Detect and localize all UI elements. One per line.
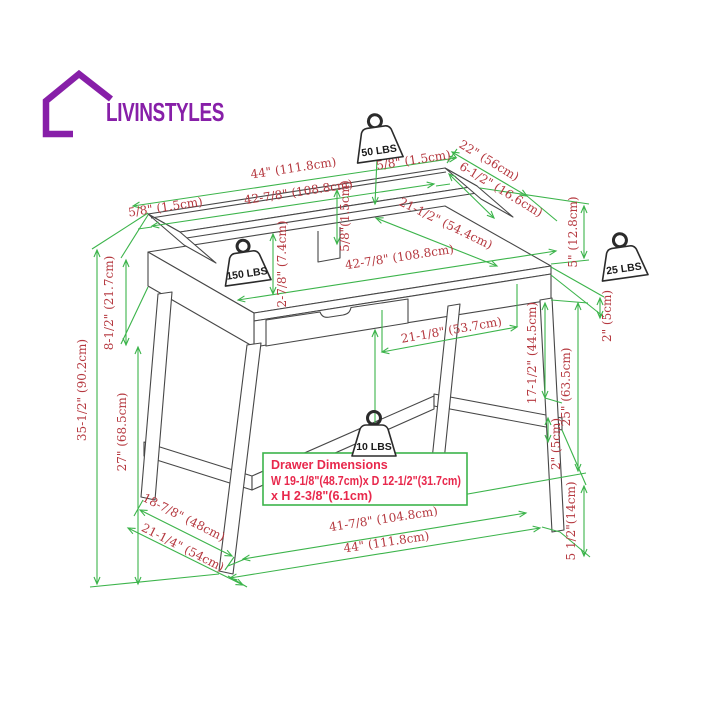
drawer-dimensions-callout: Drawer Dimensions W 19-1/8"(48.7cm)x D 1… — [263, 453, 467, 505]
front-left-leg — [219, 343, 261, 574]
dim-label-stretcher-drop: 17-1/2" (44.5cm) — [525, 302, 539, 404]
dim-label-leg-height: 27" (68.5cm) — [115, 393, 129, 472]
weight-ring-icon — [613, 233, 628, 248]
desk-drawing — [141, 168, 564, 574]
dim-label-riser-height: 5" (12.8cm) — [566, 196, 580, 267]
dim-label-underside-to-floor: 25" (63.5cm) — [559, 348, 573, 427]
brand-logo: LIVINSTYLES — [46, 74, 224, 134]
dim-label-top-edge: 2" (5cm) — [600, 290, 614, 342]
callout-line-2: W 19-1/8"(48.7cm)x D 12-1/2"(31.7cm) — [271, 474, 461, 488]
dim-label-shelf-clearance: 2-7/8" (7.4cm) — [275, 221, 289, 308]
dim-label-stretcher-to-floor: 5 1/2"(14cm) — [564, 481, 578, 560]
dim-label-shelf-thickness: 5/8"(1.5cm) — [338, 180, 352, 251]
dim-label-overall-height: 35-1/2" (90.2cm) — [75, 339, 89, 441]
ext-line-overall-top — [92, 213, 148, 249]
ext-line-carcass-bottom — [121, 287, 148, 344]
back-left-leg — [141, 292, 172, 500]
weight-badge-top-shelf: 50 LBS — [351, 112, 403, 163]
callout-line-3: x H 2-3/8"(6.1cm) — [271, 489, 372, 503]
brand-name: LIVINSTYLES — [106, 97, 224, 127]
house-icon — [46, 74, 111, 134]
dim-label-carcass-height: 8-1/2" (21.7cm) — [102, 256, 116, 351]
right-stretcher — [434, 394, 562, 430]
dim-label-bottom-width-outer: 44" (111.8cm) — [343, 529, 431, 556]
weight-badge-side: 25 LBS — [596, 231, 648, 281]
dimension-diagram: LIVINSTYLES — [0, 0, 720, 720]
callout-line-1: Drawer Dimensions — [271, 458, 388, 472]
product-dimension-page: LIVINSTYLES — [0, 0, 720, 720]
weight-label: 10 LBS — [356, 441, 392, 453]
ext-line-floor-left — [90, 574, 219, 587]
dim-label-stretcher-thickness: 2" (5cm) — [549, 418, 563, 470]
